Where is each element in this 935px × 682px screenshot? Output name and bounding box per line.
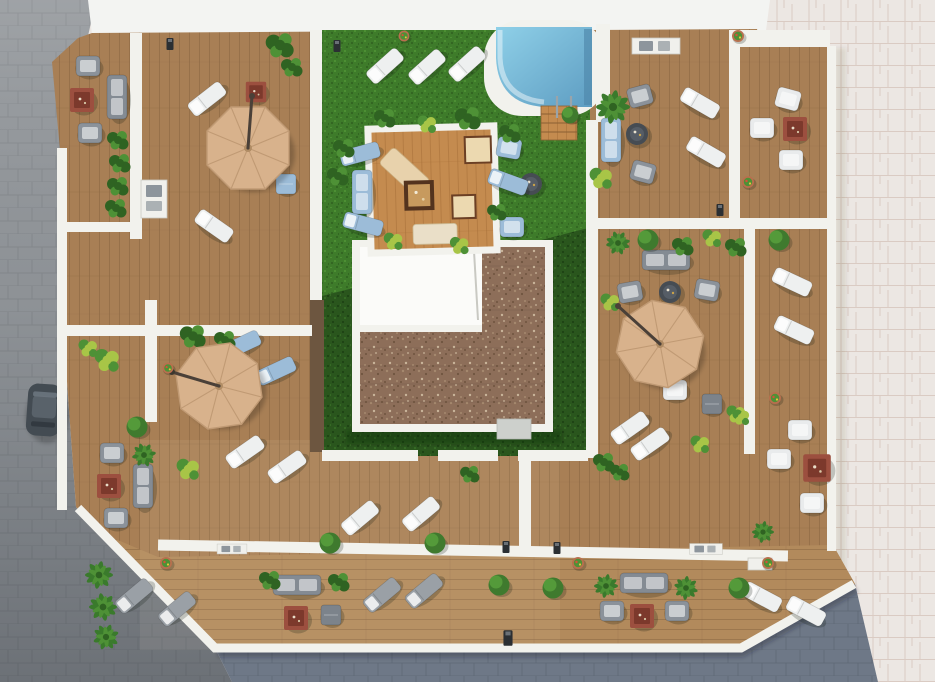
rooftop-aerial-render: [0, 0, 935, 682]
armchair-white: [750, 118, 778, 142]
path-light: [334, 40, 341, 52]
armchair-white: [788, 420, 816, 444]
path-light: [717, 204, 724, 216]
wall-v-topright: [729, 30, 740, 218]
fire-table: [246, 82, 270, 105]
garden-center: [310, 20, 606, 456]
pergola-platform: [364, 122, 500, 256]
armchair: [100, 443, 128, 467]
sofa: [273, 575, 325, 600]
wall-v-topleft: [130, 33, 142, 239]
core-roof-white: [360, 247, 482, 325]
wall-v-lawn-west: [310, 30, 322, 300]
platform-seat: [452, 195, 476, 219]
stool: [321, 605, 345, 628]
armchair: [104, 508, 132, 532]
platform-table: [404, 180, 435, 211]
path-light: [503, 541, 510, 553]
central-core: [346, 240, 562, 444]
deck-east-shadow: [836, 48, 846, 588]
wall-top-right-strip: [740, 30, 830, 47]
path-light: [554, 542, 561, 554]
armchair-white: [779, 150, 807, 174]
outdoor-kitchen: [632, 38, 680, 54]
path-light: [503, 630, 512, 646]
wall-v-left-mid: [145, 300, 157, 422]
outdoor-kitchen: [690, 544, 723, 555]
wall-h-right: [596, 218, 832, 229]
pool-deep-edge: [584, 29, 592, 105]
platform-seat: [465, 136, 492, 163]
armchair: [76, 56, 104, 80]
armchair: [78, 123, 106, 147]
path-light: [167, 38, 174, 50]
armchair: [600, 601, 628, 625]
rooftop-render-stage: Aerial 3D architectural rendering of an …: [0, 0, 935, 682]
fire-table: [783, 117, 811, 145]
fire-table: [97, 474, 125, 502]
outdoor-kitchen: [217, 544, 247, 554]
fire-table: [630, 604, 658, 632]
shaded-walkway: [310, 300, 324, 452]
fire-table: [284, 606, 312, 634]
stool: [702, 394, 726, 417]
fire-table: [70, 88, 98, 116]
fire-table: [803, 454, 835, 486]
armchair-white: [800, 493, 828, 517]
armchair-blue: [500, 217, 528, 241]
sofa: [620, 573, 672, 598]
wall-h-left-small: [62, 222, 130, 232]
utility-box: [497, 419, 531, 439]
armchair: [665, 601, 693, 625]
outdoor-kitchen: [141, 180, 167, 218]
wall-h-lawn-south: [322, 450, 588, 461]
armchair-white: [767, 449, 795, 473]
wall-v-bottom-center: [519, 456, 531, 556]
